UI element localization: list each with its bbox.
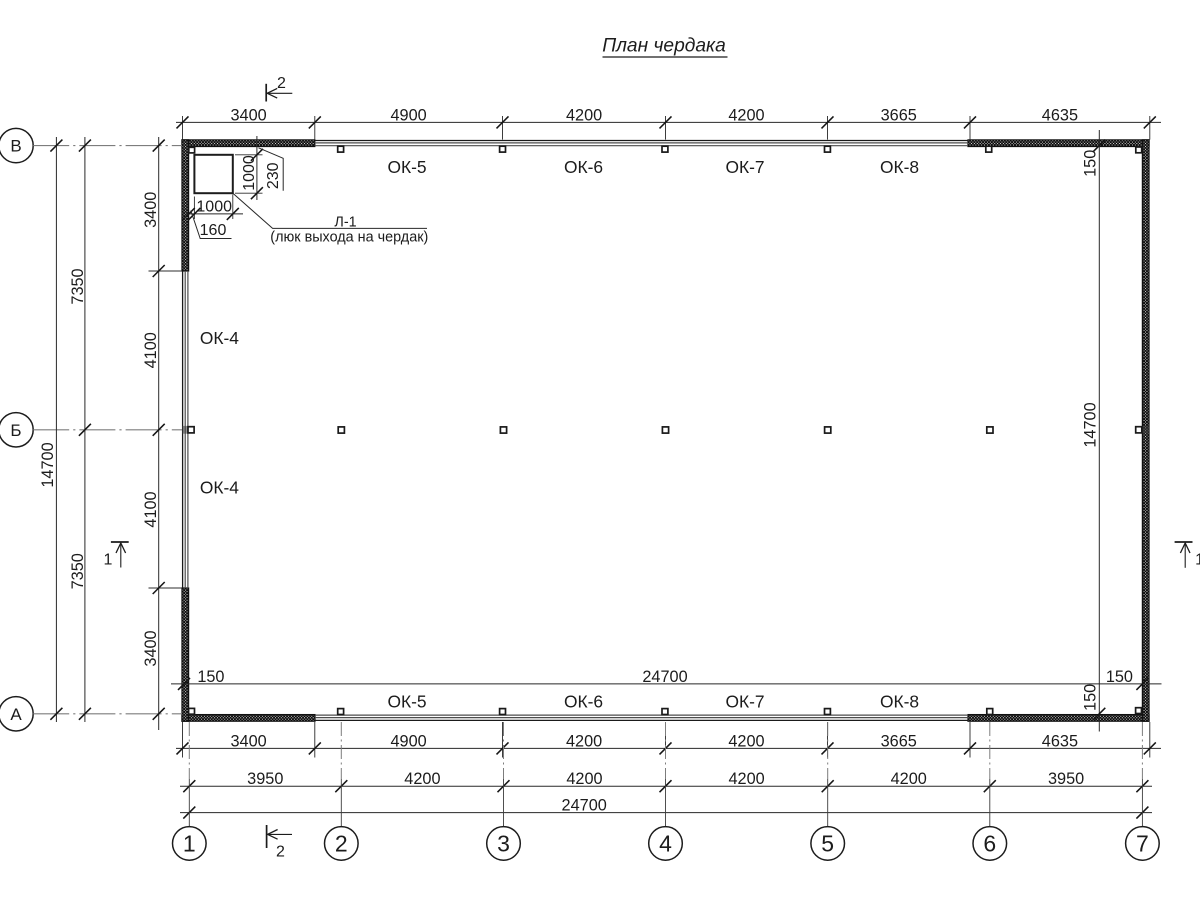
svg-text:24700: 24700 [562, 797, 607, 815]
svg-text:6: 6 [983, 830, 996, 856]
svg-text:(люк выхода на чердак): (люк выхода на чердак) [270, 229, 428, 245]
svg-text:4900: 4900 [390, 106, 426, 124]
svg-text:3950: 3950 [247, 770, 283, 788]
svg-text:3665: 3665 [881, 106, 917, 124]
svg-text:4100: 4100 [142, 491, 160, 527]
svg-text:4200: 4200 [728, 770, 764, 788]
svg-text:4200: 4200 [566, 732, 602, 750]
svg-text:Л-1: Л-1 [334, 215, 356, 231]
svg-text:3: 3 [497, 830, 510, 856]
svg-text:В: В [10, 137, 21, 156]
svg-text:160: 160 [200, 222, 227, 239]
svg-text:4200: 4200 [566, 106, 602, 124]
svg-text:ОК-8: ОК-8 [880, 157, 919, 177]
svg-text:4100: 4100 [142, 332, 160, 368]
svg-text:1000: 1000 [241, 155, 258, 191]
svg-text:150: 150 [1106, 668, 1133, 686]
svg-text:ОК-6: ОК-6 [564, 157, 603, 177]
svg-text:1: 1 [183, 830, 196, 856]
svg-text:ОК-4: ОК-4 [200, 328, 239, 348]
svg-text:150: 150 [1081, 150, 1099, 177]
svg-text:А: А [10, 705, 22, 724]
svg-text:4635: 4635 [1042, 106, 1078, 124]
svg-text:230: 230 [265, 162, 282, 189]
svg-text:3400: 3400 [142, 192, 160, 228]
svg-text:2: 2 [277, 75, 286, 92]
svg-text:1000: 1000 [196, 198, 232, 215]
svg-text:4635: 4635 [1042, 732, 1078, 750]
svg-text:4900: 4900 [390, 732, 426, 750]
svg-text:24700: 24700 [642, 668, 687, 686]
svg-text:4200: 4200 [728, 106, 764, 124]
svg-text:ОК-5: ОК-5 [387, 691, 426, 711]
svg-text:План чердака: План чердака [602, 36, 726, 57]
svg-text:4200: 4200 [728, 732, 764, 750]
svg-text:14700: 14700 [39, 442, 57, 487]
svg-text:1: 1 [1195, 551, 1200, 568]
svg-text:4200: 4200 [404, 770, 440, 788]
svg-text:4200: 4200 [566, 770, 602, 788]
svg-text:ОК-6: ОК-6 [564, 691, 603, 711]
svg-text:5: 5 [821, 830, 834, 856]
svg-text:14700: 14700 [1081, 402, 1099, 447]
svg-text:ОК-7: ОК-7 [725, 157, 764, 177]
svg-text:2: 2 [276, 843, 285, 860]
svg-text:4: 4 [659, 830, 672, 856]
svg-text:7350: 7350 [69, 268, 87, 304]
svg-text:1: 1 [103, 551, 112, 568]
svg-text:2: 2 [335, 830, 348, 856]
svg-text:4200: 4200 [891, 770, 927, 788]
svg-text:3950: 3950 [1048, 770, 1084, 788]
svg-text:3400: 3400 [142, 630, 160, 666]
svg-text:7350: 7350 [69, 553, 87, 589]
svg-text:7: 7 [1136, 830, 1149, 856]
svg-text:ОК-5: ОК-5 [387, 157, 426, 177]
svg-text:3400: 3400 [230, 732, 266, 750]
svg-text:150: 150 [197, 668, 224, 686]
svg-text:ОК-8: ОК-8 [880, 691, 919, 711]
svg-text:ОК-7: ОК-7 [725, 691, 764, 711]
svg-text:3665: 3665 [881, 732, 917, 750]
svg-text:Б: Б [10, 421, 21, 440]
svg-text:150: 150 [1081, 684, 1099, 711]
svg-text:3400: 3400 [230, 106, 266, 124]
svg-text:ОК-4: ОК-4 [200, 478, 239, 498]
